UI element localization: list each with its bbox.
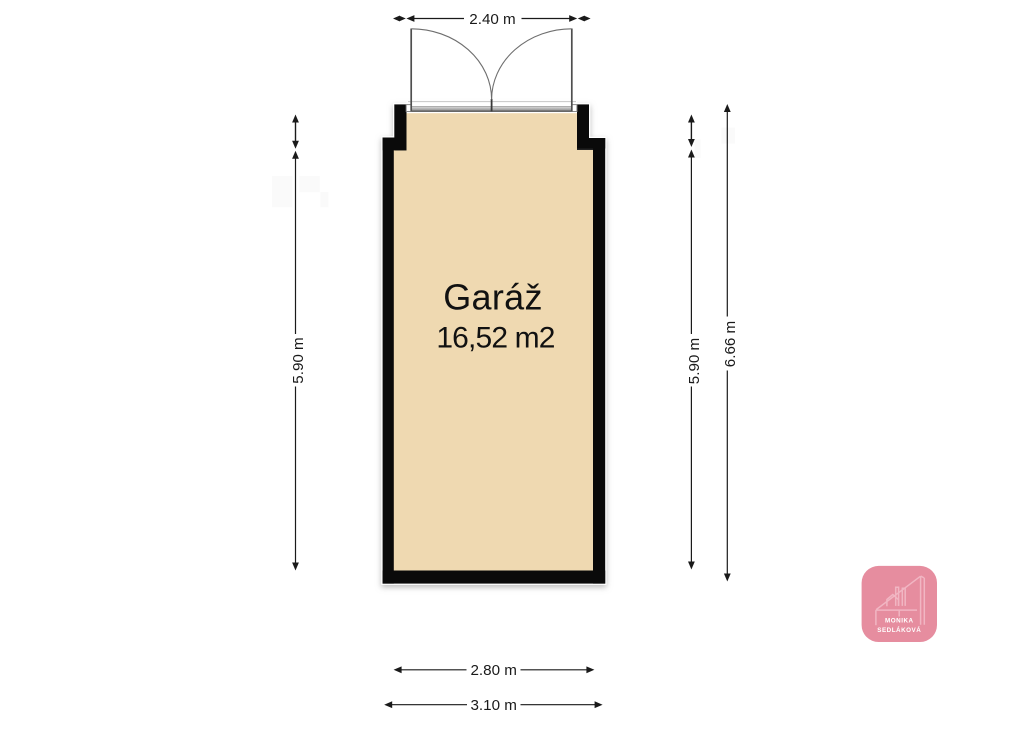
svg-text:2.40 m: 2.40 m: [469, 11, 515, 28]
svg-text:6.66 m: 6.66 m: [722, 321, 739, 367]
svg-text:3.10 m: 3.10 m: [470, 697, 516, 714]
svg-text:5.90 m: 5.90 m: [290, 337, 307, 383]
svg-text:2.80 m: 2.80 m: [470, 662, 516, 679]
svg-text:Garáž: Garáž: [443, 277, 543, 318]
svg-text:5.90 m: 5.90 m: [686, 338, 703, 384]
svg-text:16,52 m2: 16,52 m2: [436, 321, 554, 354]
svg-text:SEDLÁKOVÁ: SEDLÁKOVÁ: [877, 625, 921, 634]
svg-text:MONIKA: MONIKA: [885, 618, 914, 625]
